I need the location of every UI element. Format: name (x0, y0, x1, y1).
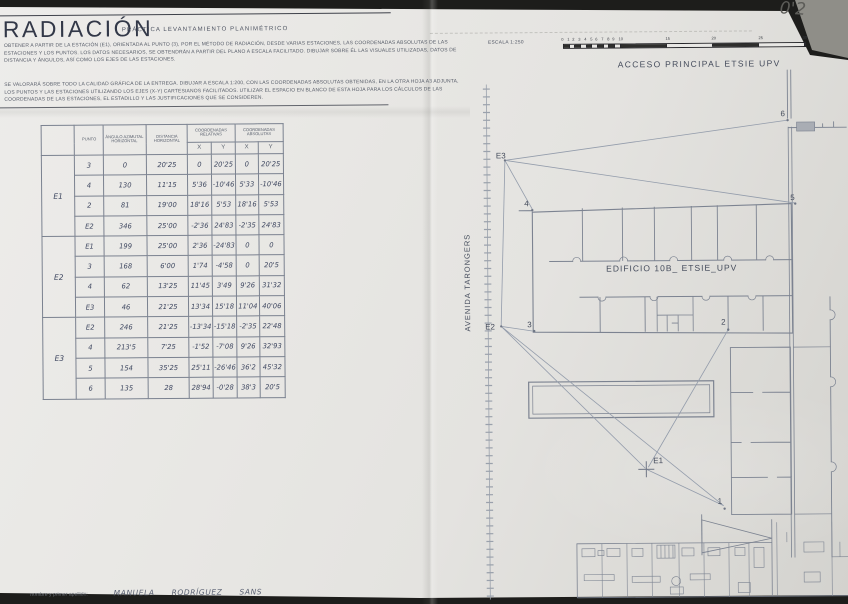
table-cell: 6 (76, 378, 105, 399)
table-cell: 3 (75, 256, 104, 277)
scale-label: ESCALA 1:250 (488, 40, 524, 45)
photo-of-sheet: RADIACIÓN PRÁCTICA LEVANTAMIENTO PLANIMÉ… (0, 0, 848, 604)
table-cell: 36'2 (237, 357, 260, 377)
scale-tick-label: 4 (584, 37, 586, 42)
col-header-punto: PUNTO (74, 125, 103, 155)
table-cell: E2 (75, 216, 104, 237)
col-header-coord-absolutas: COORDENADAS ABSOLUTAS (235, 124, 283, 142)
table-cell: -0'28 (213, 377, 237, 397)
table-row: E2E119925'002'36-24'8300 (42, 235, 284, 257)
table-cell: E2 (76, 317, 105, 338)
table-cell: 11'04 (236, 296, 259, 316)
table-cell: 25'00 (147, 215, 188, 236)
table-row: E13020'25020'25020'25 (41, 154, 283, 176)
table-cell: -15'18 (213, 316, 237, 336)
table-cell: 346 (104, 216, 147, 237)
point-label-e1: E1 (653, 456, 663, 465)
table-cell: 168 (104, 256, 147, 277)
col-header-distancia: DISTANCIA HORIZONTAL (146, 124, 187, 154)
table-cell: -4'58 (212, 255, 236, 275)
station-label: E1 (41, 155, 75, 236)
scale-tick-label: 25 (758, 36, 762, 41)
table-cell: 5'53 (212, 195, 236, 215)
table-cell: 3 (74, 155, 103, 176)
table-cell: 0 (236, 255, 259, 275)
scale-tick-label: 10 (618, 37, 622, 42)
table-cell: 20'25 (146, 154, 187, 175)
subheader-y: Y (211, 142, 235, 154)
table-cell: 21'25 (148, 317, 189, 338)
table-cell: 0 (103, 155, 146, 176)
scale-tick-label: 7 (601, 37, 603, 42)
table-cell: E3 (75, 297, 104, 318)
table-cell: 199 (104, 236, 147, 257)
scale-tick-label: 30 (802, 36, 806, 41)
table-cell: 18'16 (188, 195, 212, 215)
table-cell: 0 (235, 154, 258, 174)
scale-bar-segments (563, 42, 806, 49)
table-cell: 13'25 (147, 276, 188, 297)
scale-tick-label: 2 (573, 37, 575, 42)
scale-tick-label: 9 (613, 37, 615, 42)
point-label-e3: E3 (496, 151, 506, 160)
table-cell: 246 (105, 317, 148, 338)
point-label-4: 4 (524, 199, 529, 208)
table-cell: 11'15 (146, 175, 187, 196)
table-row: 515435'2525'11-26'4636'245'32 (43, 357, 285, 379)
site-plan-drawing: ACCESO PRINCIPAL ETSIE UPV EDIFICIO 10B_… (438, 52, 848, 604)
table-cell: 5'33 (236, 174, 259, 194)
handwritten-grade: 0'2 (779, 0, 807, 20)
table-cell: 5'36 (187, 174, 211, 194)
table-cell: 4 (75, 277, 104, 298)
table-cell: -26'46 (213, 357, 237, 377)
subheader-x: X (235, 142, 258, 154)
scale-tick-label: 20 (711, 36, 715, 41)
bottom-building-strip (577, 519, 848, 598)
point-label-3: 3 (527, 320, 532, 329)
table-cell: -1'52 (189, 337, 213, 357)
table-cell: 13'34 (188, 296, 212, 316)
table-cell: 32'93 (259, 336, 285, 356)
station-label: E2 (42, 236, 76, 317)
survey-rays (500, 120, 798, 507)
table-cell: 130 (103, 175, 146, 196)
table-cell: 25'00 (147, 236, 188, 257)
instructions-paragraph-2: SE VALORARÁ SOBRE TODO LA CALIDAD GRÁFIC… (4, 78, 463, 104)
table-cell: 45'32 (260, 357, 286, 377)
avenue-line (486, 85, 490, 600)
table-cell: 6'00 (147, 256, 188, 277)
table-cell: 2'36 (188, 235, 212, 255)
table-cell: 28 (148, 378, 189, 399)
point-label-2: 2 (721, 318, 726, 327)
table-cell: 46 (104, 297, 147, 318)
table-row: E34621'2513'3415'1811'0440'06 (42, 296, 284, 318)
point-label-6: 6 (780, 109, 785, 118)
table-cell: -2'35 (236, 215, 259, 235)
table-cell: 18'16 (236, 194, 259, 214)
scale-tick-label: 15 (665, 37, 669, 42)
table-cell: 19'00 (147, 195, 188, 216)
table-cell: 154 (105, 358, 148, 379)
table-cell: 20'25 (258, 154, 284, 174)
table-cell: 15'18 (212, 296, 236, 316)
table-cell: 1'74 (188, 256, 212, 276)
table-cell: -24'83 (212, 235, 236, 255)
table-row: 413011'155'36-10'465'33-10'46 (41, 174, 283, 196)
pencil-crease-line (430, 30, 752, 34)
table-cell: 31'32 (259, 275, 285, 295)
scale-tick-label: 0 (561, 37, 563, 42)
handwritten-name: MANUELA RODRÍGUEZ SANS (114, 587, 263, 597)
table-row: 46213'2511'453'499'2631'32 (42, 275, 284, 297)
table-cell: E1 (75, 236, 104, 257)
table-cell: 25'11 (189, 357, 213, 377)
table-row: 31686'001'74-4'58020'5 (42, 255, 284, 277)
table-cell: 40'06 (259, 296, 285, 316)
table-cell: 7'25 (148, 337, 189, 358)
table-cell: 11'45 (188, 276, 212, 296)
table-cell: 9'26 (236, 276, 259, 296)
table-cell: -2'36 (188, 215, 212, 235)
table-cell: 5'53 (258, 194, 284, 214)
avenida-tarongers-label: AVENIDA TARONGERS (462, 234, 472, 332)
table-cell: 213'5 (105, 337, 148, 358)
point-label-e2: E2 (485, 322, 495, 331)
table-cell: 3'49 (212, 276, 236, 296)
table-cell: 20'5 (259, 255, 285, 275)
table-row: 4213'57'25-1'52-7'089'2632'93 (43, 336, 285, 358)
col-header-coord-relativas: COORDENADAS RELATIVAS (187, 124, 235, 142)
instructions-paragraph-1: OBTENER A PARTIR DE LA ESTACIÓN (E1), OR… (4, 39, 463, 65)
table-cell: 5 (76, 358, 105, 379)
point-label-5: 5 (790, 193, 795, 202)
table-cell: 35'25 (148, 357, 189, 378)
table-row: 61352828'94-0'2838'320'5 (43, 377, 285, 399)
table-cell: 62 (104, 276, 147, 297)
sheet-content: RADIACIÓN PRÁCTICA LEVANTAMIENTO PLANIMÉ… (0, 0, 848, 604)
name-field: nombre y primer apellido: MANUELA RODRÍG… (30, 587, 262, 598)
table-cell: -10'46 (258, 174, 284, 194)
table-cell: 0 (236, 235, 259, 255)
name-field-label: nombre y primer apellido: (30, 592, 88, 598)
header-rule-bottom (0, 104, 388, 108)
table-cell: 81 (104, 195, 147, 216)
table-cell: 20'5 (260, 377, 286, 397)
station-label: E3 (43, 318, 77, 399)
table-row: E3E224621'25-13'34-15'18-2'3522'48 (43, 316, 285, 338)
table-cell: -10'46 (211, 174, 235, 194)
table-cell: 2 (75, 196, 104, 217)
table-row: 28119'0018'165'5318'165'53 (42, 194, 284, 216)
col-header-angulo: ÁNGULO AZIMUTAL HORIZONTAL (103, 125, 146, 155)
scale-tick-label: 1 (567, 37, 569, 42)
edificio-label: EDIFICIO 10B_ ETSIE_UPV (606, 263, 737, 274)
table-cell: 28'94 (189, 377, 213, 397)
scale-tick-label: 5 (590, 37, 592, 42)
table-cell: -7'08 (213, 337, 237, 357)
table-cell: 22'48 (259, 316, 285, 336)
table-cell: 135 (105, 378, 148, 399)
station-column-header (41, 125, 74, 155)
table-cell: 0 (187, 154, 211, 174)
table-cell: 0 (259, 235, 285, 255)
building-walls (518, 70, 848, 560)
table-cell: 4 (76, 338, 105, 359)
table-cell: -13'34 (189, 317, 213, 337)
table-cell: 24'83 (258, 214, 284, 234)
table-cell: 38'3 (237, 377, 260, 397)
table-cell: 4 (74, 175, 103, 196)
table-cell: -2'35 (237, 316, 260, 336)
point-dots (498, 119, 798, 512)
point-labels: E3 4 5 6 E2 3 2 E1 1 (484, 109, 798, 507)
subheader-x: X (187, 142, 211, 154)
scale-tick-label: 3 (578, 37, 580, 42)
page-subtitle: PRÁCTICA LEVANTAMIENTO PLANIMÉTRICO (122, 26, 289, 33)
table-cell: 9'26 (237, 336, 260, 356)
subheader-y: Y (258, 142, 283, 154)
graphic-scale-bar: 01234567891015202530 (563, 35, 806, 51)
table-cell: 20'25 (211, 154, 235, 174)
point-label-1: 1 (718, 497, 723, 506)
acceso-principal-label: ACCESO PRINCIPAL ETSIE UPV (618, 58, 781, 69)
table-cell: 21'25 (147, 296, 188, 317)
scale-tick-label: 8 (607, 37, 609, 42)
table-cell: 24'83 (212, 215, 236, 235)
survey-table: PUNTO ÁNGULO AZIMUTAL HORIZONTAL DISTANC… (41, 123, 286, 399)
table-row: E234625'00-2'3624'83-2'3524'83 (42, 214, 284, 236)
scale-tick-label: 6 (595, 37, 597, 42)
